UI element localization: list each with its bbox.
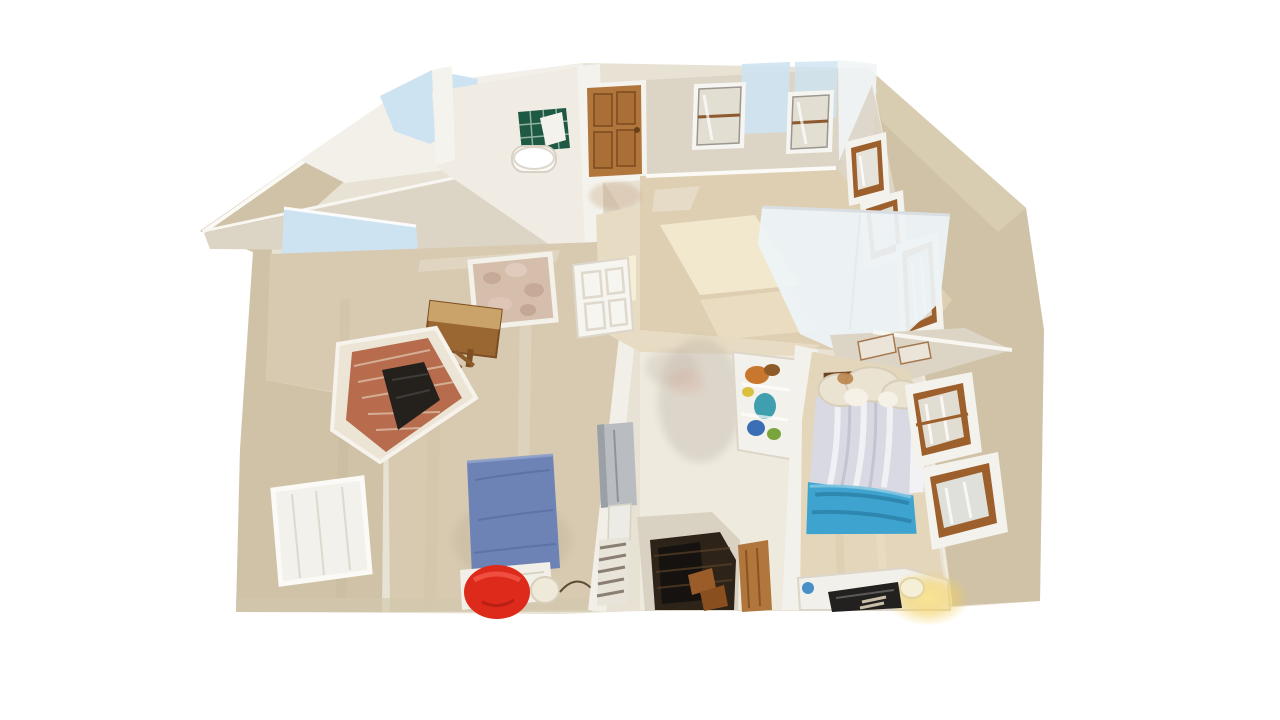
lamp-shade xyxy=(900,578,924,598)
lower-door-wood xyxy=(738,540,772,612)
red-beanbag xyxy=(464,565,530,619)
sink-basin xyxy=(514,147,554,169)
wooden-door xyxy=(581,80,647,184)
staircase xyxy=(637,512,740,611)
desk-blue-item xyxy=(802,582,814,594)
white-box xyxy=(608,504,631,542)
curtained-window xyxy=(273,478,370,584)
white-open-door xyxy=(573,258,633,338)
toy-shelf xyxy=(733,352,800,460)
top-window-1 xyxy=(692,82,746,150)
top-window-2 xyxy=(786,90,834,154)
bathroom-left-wall xyxy=(432,66,455,165)
skylight-band-1 xyxy=(740,62,790,134)
dollhouse-viewport[interactable]: Top-down 3D dollhouse scan of an upper f… xyxy=(0,0,1280,720)
bedroom-window-upper xyxy=(905,372,982,468)
side-frame-1 xyxy=(845,132,890,206)
threshold-smudge xyxy=(589,182,641,210)
zebra-print-bin xyxy=(597,537,629,606)
scan-blur-pink xyxy=(668,370,704,394)
gray-cabinet xyxy=(597,422,637,508)
door-knob xyxy=(634,127,640,133)
